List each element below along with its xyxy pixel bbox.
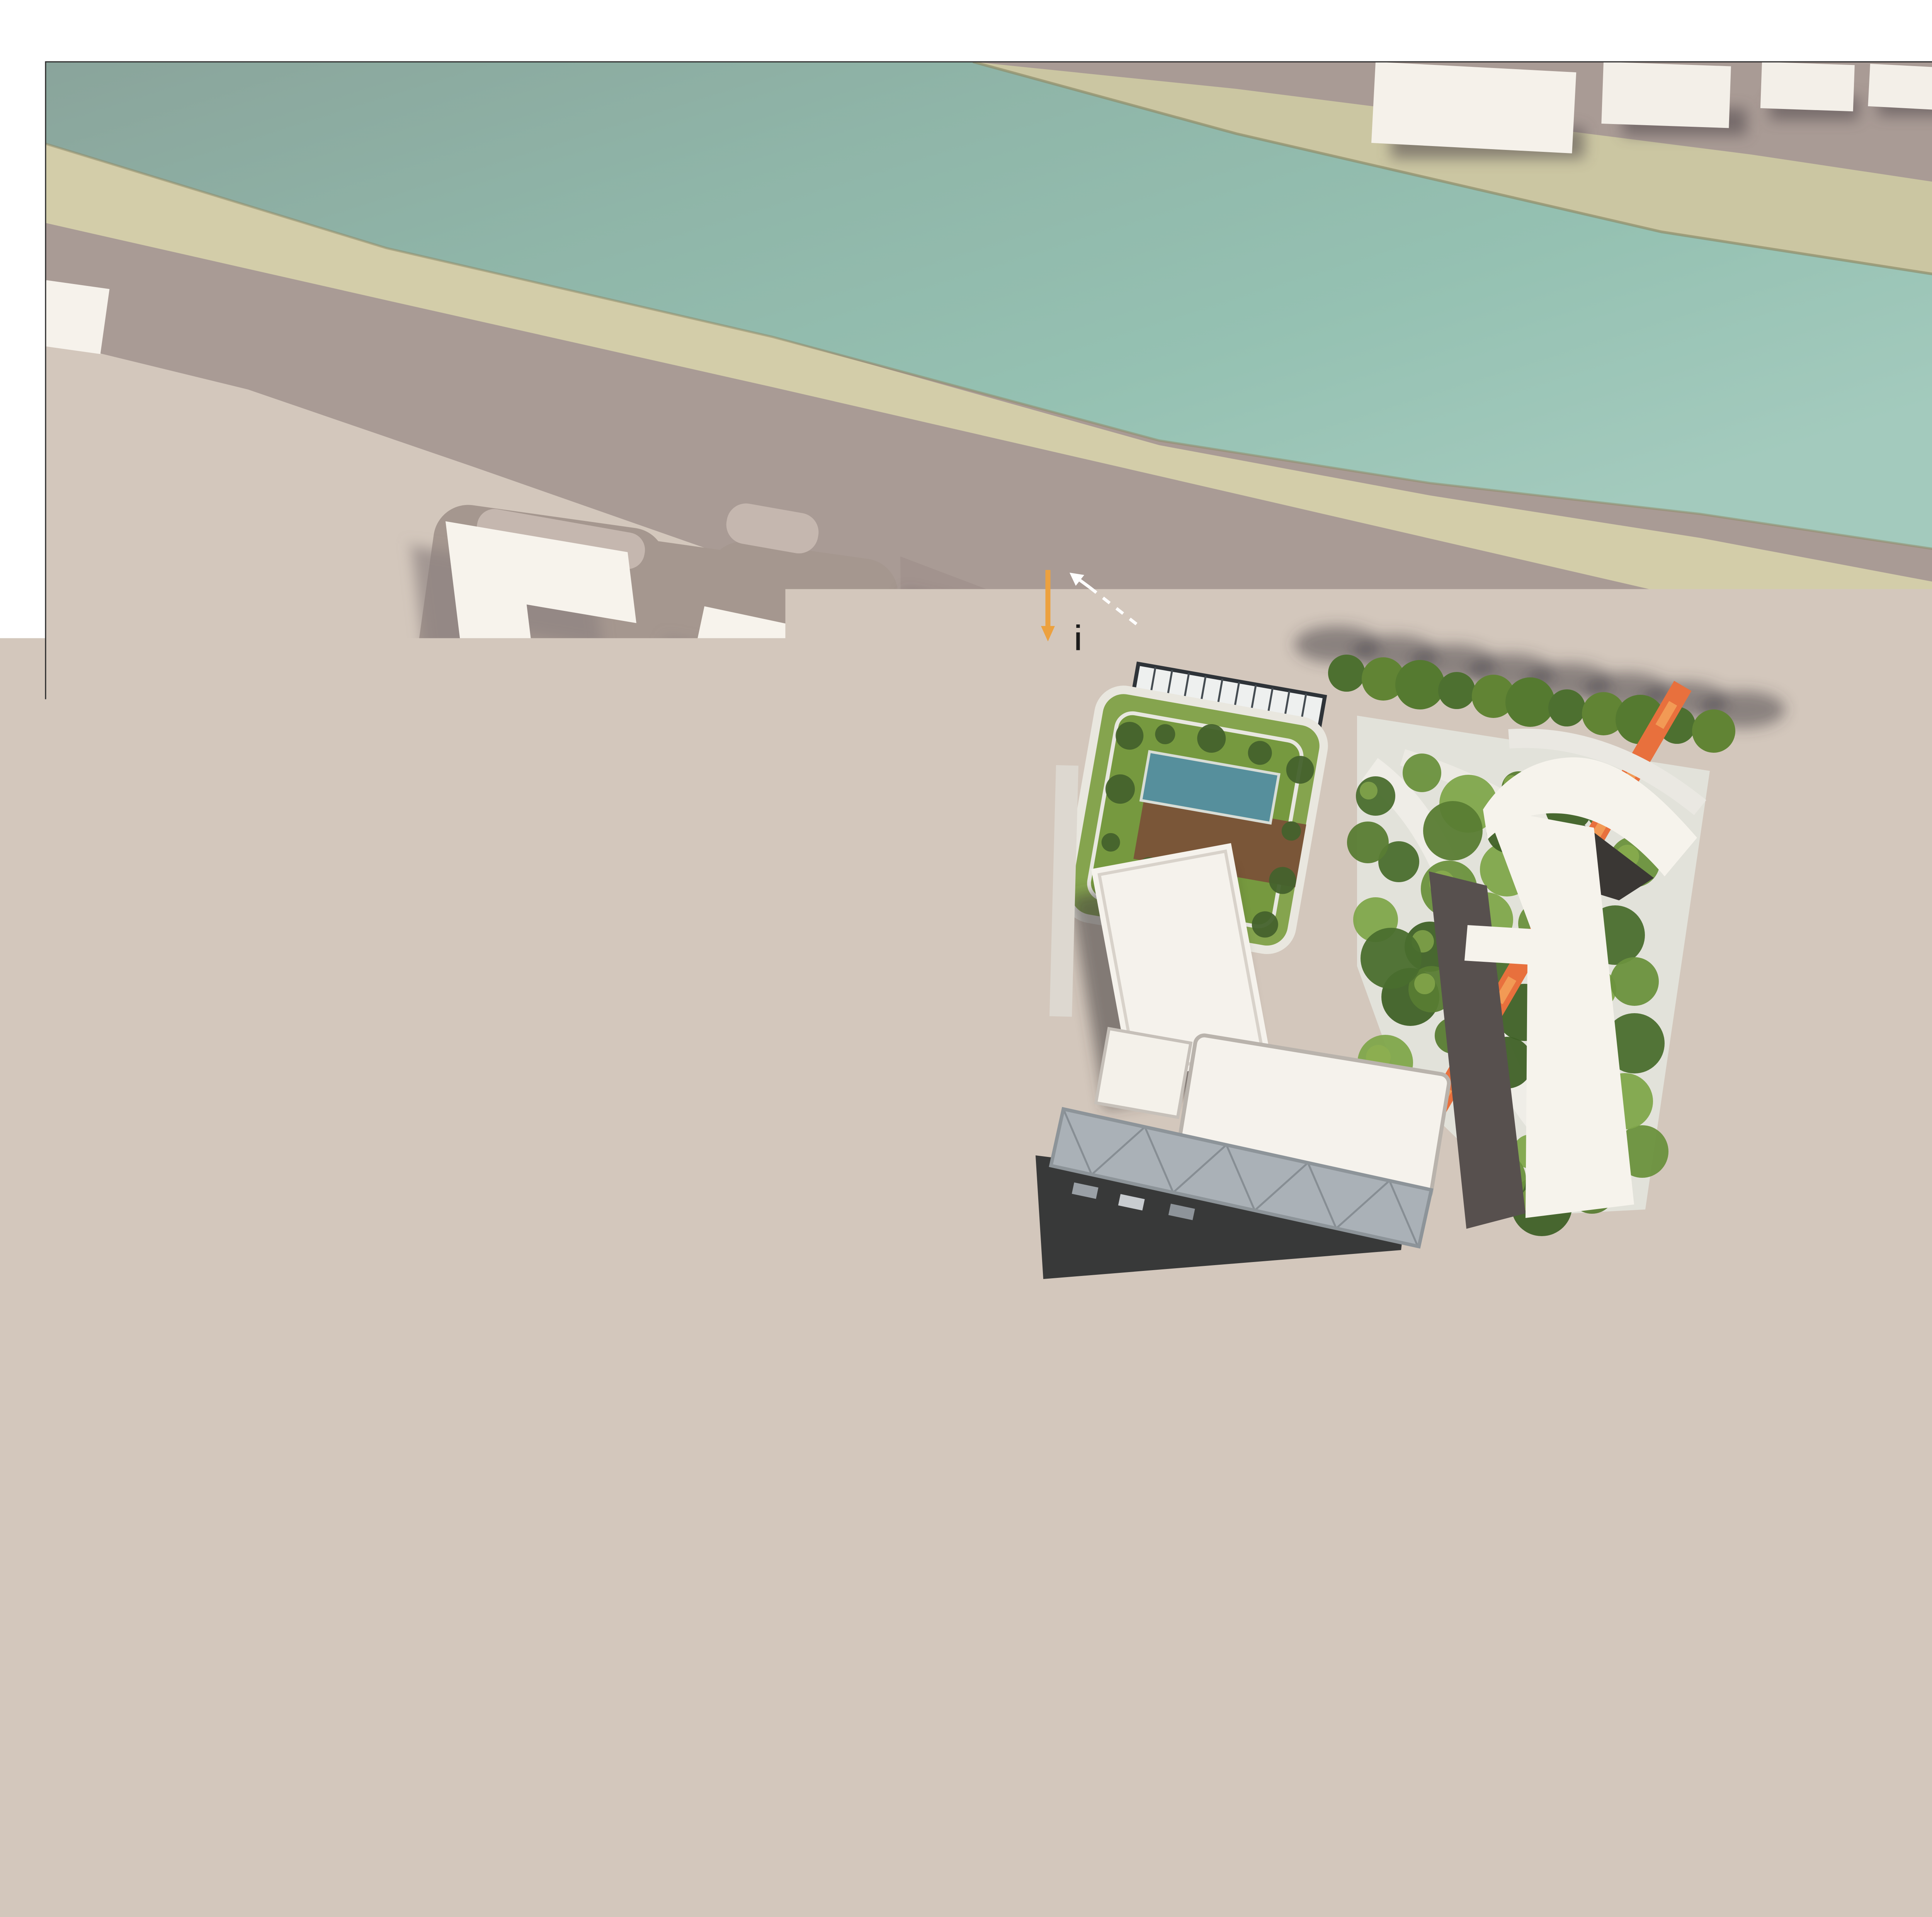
svg-text:a. Lobby: a. Lobby <box>1889 945 1932 973</box>
svg-text:e: e <box>1014 910 1036 956</box>
svg-text:f. Service & Utility: f. Service & Utility <box>1889 1095 1932 1123</box>
svg-text:JUDUL TUGAS: JUDUL TUGAS <box>1693 1709 1765 1720</box>
svg-text:a: a <box>1223 671 1245 716</box>
svg-text:g: g <box>1377 889 1399 934</box>
svg-text:c. Exhibit: c. Exhibit <box>1889 1005 1932 1033</box>
svg-text:f: f <box>1117 1214 1128 1259</box>
svg-text:b. Hotel: b. Hotel <box>1889 975 1932 1003</box>
svg-text:HOTEL BISNIS DI SURABAYA: HOTEL BISNIS DI SURABAYA <box>1777 1730 1932 1754</box>
svg-text:b: b <box>1268 1057 1290 1102</box>
svg-text:UNIVERSITAS KRISTEN PETRA: UNIVERSITAS KRISTEN PETRA <box>1472 1863 1638 1875</box>
svg-text:j: j <box>1190 783 1200 828</box>
svg-text:d: d <box>1132 1042 1154 1087</box>
svg-text:Legenda:: Legenda: <box>1889 915 1932 942</box>
svg-text:h. Entry Site: h. Entry Site <box>1889 1156 1932 1184</box>
svg-text:FAKULTAS TEKNIK SIPIL DAN PERE: FAKULTAS TEKNIK SIPIL DAN PERENCANAAN <box>1433 1850 1677 1862</box>
svg-text:JUDUL GAMBAR: JUDUL GAMBAR <box>1693 1781 1775 1793</box>
svg-text:SURABAYA: SURABAYA <box>1526 1874 1585 1887</box>
svg-text:g. Public Park: g. Public Park <box>1889 1126 1932 1153</box>
svg-text:PROGRAM STUDI ARSITEKTUR: PROGRAM STUDI ARSITEKTUR <box>1432 1830 1679 1849</box>
svg-text:i. Exit Site: i. Exit Site <box>1889 1186 1932 1214</box>
svg-text:d. Core: d. Core <box>1889 1035 1932 1063</box>
svg-text:SITEPLAN: SITEPLAN <box>1818 1821 1926 1846</box>
svg-text:e. Basement Access: e. Basement Access <box>1889 1065 1932 1093</box>
svg-text:h: h <box>1692 715 1714 760</box>
svg-text:U: U <box>276 1615 309 1666</box>
svg-text:j. Semi-Open Terrace: j. Semi-Open Terrace <box>1889 1216 1932 1244</box>
svg-text:c: c <box>1597 968 1618 1014</box>
svg-text:TUGAS AKHIR - SEMESTER GENAP 2: TUGAS AKHIR - SEMESTER GENAP 2023/2024 <box>1738 1681 1932 1700</box>
